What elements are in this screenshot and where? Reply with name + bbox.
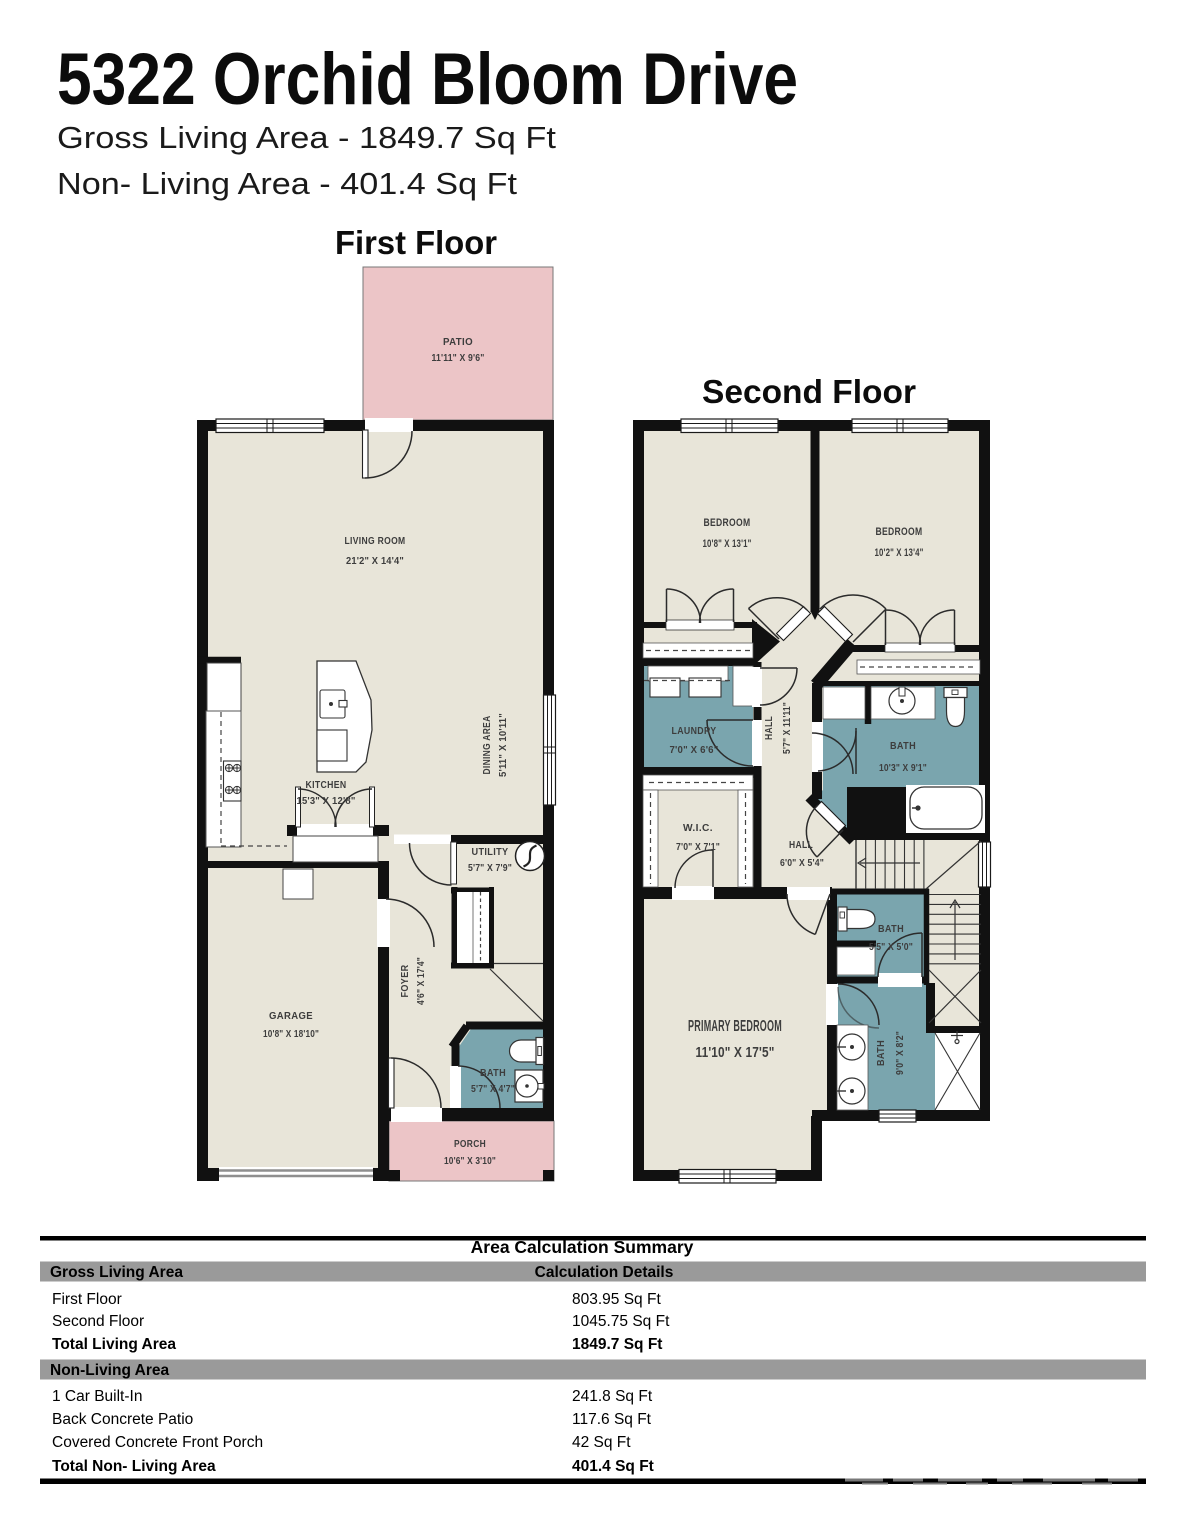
svg-text:FOYER: FOYER — [399, 964, 411, 997]
svg-text:10'8" X 18'10": 10'8" X 18'10" — [263, 1028, 319, 1040]
svg-text:10'8" X 13'1": 10'8" X 13'1" — [703, 538, 752, 550]
svg-text:1849.7 Sq Ft: 1849.7 Sq Ft — [572, 1336, 662, 1353]
svg-text:DINING AREA: DINING AREA — [481, 715, 493, 774]
svg-text:Calculation Details: Calculation Details — [535, 1264, 674, 1281]
svg-text:Gross Living Area - 1849.7 Sq: Gross Living Area - 1849.7 Sq Ft — [57, 120, 556, 155]
svg-text:10'6" X 3'10": 10'6" X 3'10" — [444, 1155, 496, 1167]
svg-text:W.I.C.: W.I.C. — [683, 822, 713, 834]
svg-text:HALL: HALL — [789, 839, 813, 851]
svg-text:BEDROOM: BEDROOM — [704, 517, 751, 529]
svg-text:803.95 Sq Ft: 803.95 Sq Ft — [572, 1291, 661, 1308]
svg-text:GARAGE: GARAGE — [269, 1010, 313, 1022]
svg-text:5'11" X 10'11": 5'11" X 10'11" — [497, 713, 509, 777]
svg-text:11'11" X 9'6": 11'11" X 9'6" — [432, 352, 485, 364]
svg-text:PRIMARY BEDROOM: PRIMARY BEDROOM — [688, 1018, 782, 1035]
svg-text:5'5" X 5'0": 5'5" X 5'0" — [869, 941, 913, 953]
svg-text:5'7" X 7'9": 5'7" X 7'9" — [468, 862, 512, 874]
svg-text:9'0" X 8'2": 9'0" X 8'2" — [894, 1031, 906, 1075]
svg-text:Second Floor: Second Floor — [702, 373, 916, 410]
svg-text:Area Calculation Summary: Area Calculation Summary — [471, 1237, 694, 1257]
svg-text:KITCHEN: KITCHEN — [306, 779, 347, 791]
svg-text:42 Sq Ft: 42 Sq Ft — [572, 1434, 631, 1451]
svg-text:BATH: BATH — [875, 1040, 887, 1066]
svg-text:LIVING ROOM: LIVING ROOM — [345, 535, 406, 547]
svg-text:Total Non- Living Area: Total Non- Living Area — [52, 1458, 216, 1475]
svg-text:5'7" X 4'7": 5'7" X 4'7" — [471, 1083, 515, 1095]
svg-text:UTILITY: UTILITY — [472, 846, 509, 858]
svg-text:LAUNDRY: LAUNDRY — [672, 725, 717, 737]
svg-text:10'2" X 13'4": 10'2" X 13'4" — [875, 547, 924, 559]
svg-text:Gross Living Area: Gross Living Area — [50, 1264, 183, 1281]
svg-text:5322 Orchid Bloom Drive: 5322 Orchid Bloom Drive — [57, 39, 798, 120]
svg-text:PATIO: PATIO — [443, 336, 473, 348]
svg-text:BATH: BATH — [480, 1067, 506, 1079]
svg-text:1 Car Built-In: 1 Car Built-In — [52, 1388, 142, 1405]
svg-text:5'7" X 11'11": 5'7" X 11'11" — [781, 702, 793, 754]
svg-text:Back Concrete Patio: Back Concrete Patio — [52, 1411, 193, 1428]
svg-text:HALL: HALL — [763, 716, 775, 740]
svg-text:BEDROOM: BEDROOM — [876, 526, 923, 538]
svg-text:Non- Living Area - 401.4 Sq Ft: Non- Living Area - 401.4 Sq Ft — [57, 166, 517, 201]
svg-text:Non-Living Area: Non-Living Area — [50, 1362, 170, 1379]
svg-text:15'3" X 12'8": 15'3" X 12'8" — [297, 795, 356, 807]
svg-text:401.4 Sq Ft: 401.4 Sq Ft — [572, 1458, 654, 1475]
svg-text:241.8 Sq Ft: 241.8 Sq Ft — [572, 1388, 653, 1405]
svg-text:11'10" X 17'5": 11'10" X 17'5" — [696, 1044, 775, 1061]
svg-text:Second Floor: Second Floor — [52, 1313, 144, 1330]
svg-text:7'0" X 6'6": 7'0" X 6'6" — [670, 744, 719, 756]
svg-text:117.6 Sq Ft: 117.6 Sq Ft — [572, 1411, 652, 1428]
svg-text:BATH: BATH — [890, 740, 916, 752]
svg-text:First Floor: First Floor — [52, 1291, 122, 1308]
svg-text:6'0" X 5'4": 6'0" X 5'4" — [780, 857, 824, 869]
svg-text:First Floor: First Floor — [335, 224, 497, 261]
svg-text:7'0" X 7'1": 7'0" X 7'1" — [676, 841, 720, 853]
svg-text:10'3" X 9'1": 10'3" X 9'1" — [879, 762, 927, 774]
svg-text:1045.75 Sq Ft: 1045.75 Sq Ft — [572, 1313, 670, 1330]
svg-text:4'6" X 17'4": 4'6" X 17'4" — [415, 957, 427, 1005]
svg-text:PORCH: PORCH — [454, 1138, 486, 1150]
svg-text:21'2" X 14'4": 21'2" X 14'4" — [346, 555, 404, 567]
svg-text:Covered Concrete Front Porch: Covered Concrete Front Porch — [52, 1434, 263, 1451]
svg-text:BATH: BATH — [878, 923, 904, 935]
svg-text:Total Living Area: Total Living Area — [52, 1336, 176, 1353]
